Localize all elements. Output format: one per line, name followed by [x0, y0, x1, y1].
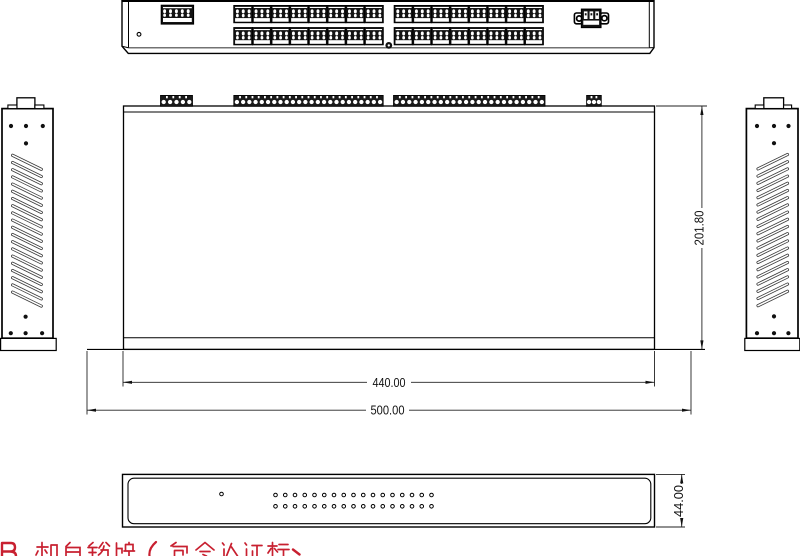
svg-text:440.00: 440.00 [373, 375, 406, 390]
svg-text:44.00: 44.00 [671, 485, 686, 517]
svg-text:500.00: 500.00 [371, 403, 405, 418]
svg-text:201.80: 201.80 [691, 211, 706, 246]
